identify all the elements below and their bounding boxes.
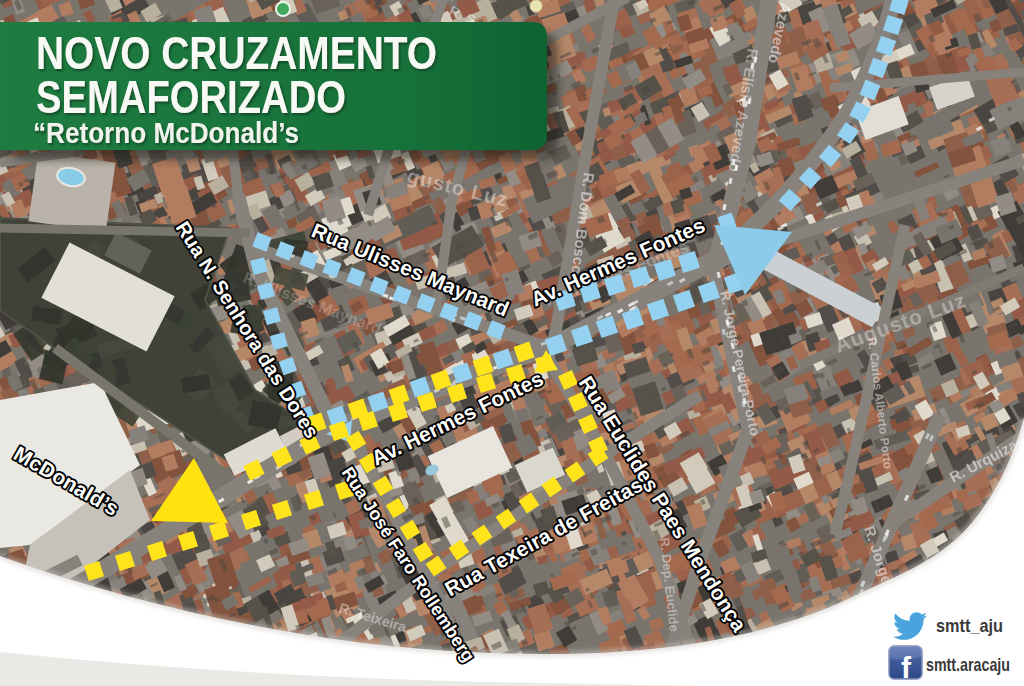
svg-text:smtt_aju: smtt_aju (936, 615, 1003, 636)
svg-text:“Retorno McDonald’s: “Retorno McDonald’s (33, 116, 299, 149)
svg-text:smtt.aracaju: smtt.aracaju (926, 654, 1010, 675)
svg-text:f: f (901, 651, 912, 684)
